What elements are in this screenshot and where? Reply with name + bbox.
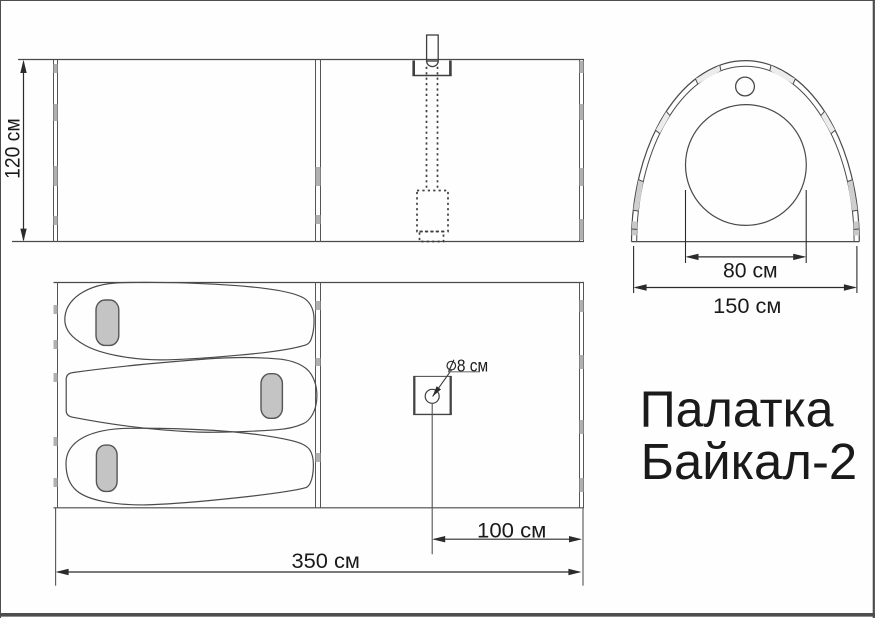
svg-text:100 см: 100 см [477,518,546,542]
svg-text:Байкал-2: Байкал-2 [641,433,858,490]
svg-text:120 см: 120 см [1,118,25,179]
svg-text:80 см: 80 см [723,258,778,282]
svg-text:350 см: 350 см [292,549,360,573]
svg-text:150 см: 150 см [713,294,781,318]
svg-text:8 см: 8 см [457,355,488,375]
svg-text:Палатка: Палатка [640,381,835,438]
